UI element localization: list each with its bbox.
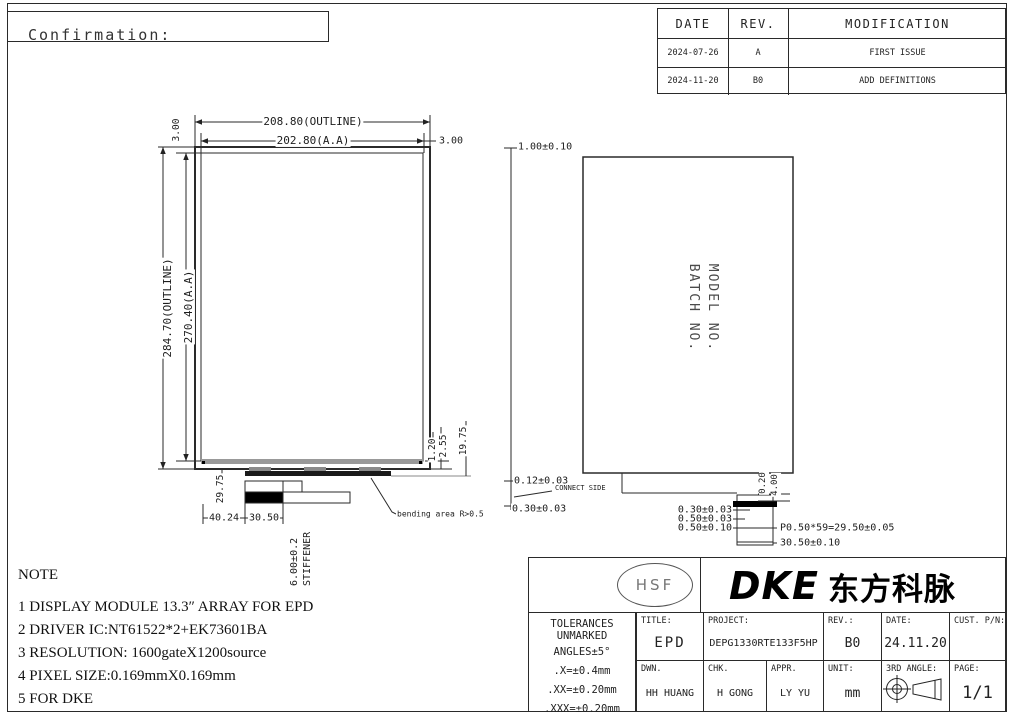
dim-stack-c: 0.50±0.10	[677, 523, 733, 534]
revision-table: DATE REV. MODIFICATION 2024-07-26 A FIRS…	[657, 8, 1006, 94]
chk-label: CHK.	[704, 661, 766, 674]
dim-margin-right: 3.00	[438, 136, 464, 147]
connect-side-label: CONNECT SIDE	[554, 485, 607, 493]
note-line-2: 2 DRIVER IC:NT61522*2+EK73601BA	[18, 621, 313, 639]
tolerances-line3: ANGLES±5°	[554, 646, 611, 658]
dim-aa-width: 202.80(A.A)	[276, 135, 351, 147]
rev-row1-rev: A	[728, 38, 788, 67]
panel-back-marking: MODEL NO. BATCH NO.	[684, 264, 722, 352]
marking-model-no: MODEL NO.	[703, 264, 722, 352]
dim-conn-width: 30.50±0.10	[779, 538, 841, 549]
dim-outline-height: 284.70(OUTLINE)	[162, 257, 174, 358]
project-cell: PROJECT: DEPG1330RTE133F5HP	[703, 613, 823, 661]
chk-value: H GONG	[704, 674, 766, 712]
hsf-badge: HSF	[617, 563, 693, 607]
logo-cjk-text: 东方科脉	[828, 564, 956, 609]
dim-conn-a: 0.20	[759, 471, 769, 495]
date-label: DATE:	[882, 613, 949, 626]
cust-pn-cell: CUST. P/N:	[949, 613, 1005, 661]
rev-row2-modification: ADD DEFINITIONS	[788, 67, 1007, 95]
appr-label: APPR.	[767, 661, 823, 674]
confirmation-label: Confirmation:	[28, 26, 171, 44]
rev-value: B0	[824, 626, 881, 660]
dim-conn-offset-h: 40.24	[208, 513, 240, 524]
logo-divider	[700, 558, 701, 612]
rev-label: REV.:	[824, 613, 881, 626]
note-line-1: 1 DISPLAY MODULE 13.3″ ARRAY FOR EPD	[18, 598, 313, 616]
note-title: NOTE	[18, 566, 313, 584]
date-cell: DATE: 24.11.20	[881, 613, 949, 661]
dwn-cell: DWN. HH HUANG	[636, 661, 703, 712]
date-value: 24.11.20	[882, 626, 949, 660]
rev-row1-modification: FIRST ISSUE	[788, 38, 1007, 67]
appr-value: LY YU	[767, 674, 823, 712]
dim-stiffener-width: 30.50	[248, 513, 280, 524]
dim-conn-offset-v: 29.75	[216, 474, 226, 505]
rev-header-rev: REV.	[728, 9, 788, 38]
rev-row2-date: 2024-11-20	[658, 67, 728, 95]
dim-aa-height: 270.40(A.A)	[183, 270, 195, 345]
tolerances-line2: UNMARKED	[557, 630, 608, 642]
logo-dke-text: DKE	[729, 564, 819, 608]
tolerances-line1: TOLERANCES	[550, 618, 613, 630]
dim-ledge-a: 1.20	[428, 438, 438, 463]
page-value: 1/1	[950, 674, 1005, 712]
rev-row2-rev: B0	[728, 67, 788, 95]
note-line-4: 4 PIXEL SIZE:0.169mmX0.169mm	[18, 667, 313, 685]
project-value: DEPG1330RTE133F5HP	[704, 626, 823, 660]
third-angle-cell: 3RD ANGLE:	[881, 661, 949, 712]
third-angle-label: 3RD ANGLE:	[882, 661, 949, 674]
marking-batch-no: BATCH NO.	[684, 264, 703, 352]
dim-thickness: 1.00±0.10	[517, 142, 573, 153]
appr-cell: APPR. LY YU	[766, 661, 823, 712]
note-line-3: 3 RESOLUTION: 1600gateX1200source	[18, 644, 313, 662]
unit-cell: UNIT: mm	[823, 661, 881, 712]
rev-cell: REV.: B0	[823, 613, 881, 661]
page-cell: PAGE: 1/1	[949, 661, 1005, 712]
title-cell: TITLE: EPD	[636, 613, 703, 661]
title-block: HSF DKE 东方科脉 TOLERANCES UNMARKED ANGLES±…	[528, 557, 1006, 712]
dim-outline-width: 208.80(OUTLINE)	[262, 116, 363, 128]
dim-step-bottom: 0.30±0.03	[511, 504, 567, 515]
cust-pn-value	[950, 626, 1005, 660]
dim-ledge-b: 2.55	[439, 434, 449, 459]
drawing-sheet: Confirmation: DATE REV. MODIFICATION 202…	[0, 0, 1014, 720]
rev-row1-date: 2024-07-26	[658, 38, 728, 67]
unit-label: UNIT:	[824, 661, 881, 674]
dwn-value: HH HUANG	[637, 674, 703, 712]
unit-value: mm	[824, 674, 881, 712]
company-logo: DKE 东方科脉	[729, 562, 1005, 610]
tolerance-x: .X=±0.4mm	[554, 665, 611, 677]
note-line-5: 5 FOR DKE	[18, 690, 313, 708]
tolerances-cell: TOLERANCES UNMARKED ANGLES±5° .X=±0.4mm …	[529, 613, 636, 712]
title-value: EPD	[637, 626, 703, 660]
dim-margin-left: 3.00	[172, 118, 182, 143]
dim-pin-pitch: P0.50*59=29.50±0.05	[779, 523, 895, 534]
tolerance-xx: .XX=±0.20mm	[547, 684, 617, 696]
rev-header-date: DATE	[658, 9, 728, 38]
title-label: TITLE:	[637, 613, 703, 626]
dwn-label: DWN.	[637, 661, 703, 674]
rev-header-modification: MODIFICATION	[788, 9, 1007, 38]
cust-pn-label: CUST. P/N:	[950, 613, 1005, 626]
bending-note: bending area R>0.5	[396, 511, 485, 520]
project-label: PROJECT:	[704, 613, 823, 626]
dim-fpc-length: 19.75	[459, 426, 469, 457]
note-block: NOTE 1 DISPLAY MODULE 13.3″ ARRAY FOR EP…	[18, 566, 313, 708]
dim-conn-b: 4.00	[771, 473, 781, 497]
page-label: PAGE:	[950, 661, 1005, 674]
chk-cell: CHK. H GONG	[703, 661, 766, 712]
title-block-table: TOLERANCES UNMARKED ANGLES±5° .X=±0.4mm …	[529, 612, 1005, 712]
tolerance-xxx: .XXX=±0.20mm	[544, 703, 620, 715]
